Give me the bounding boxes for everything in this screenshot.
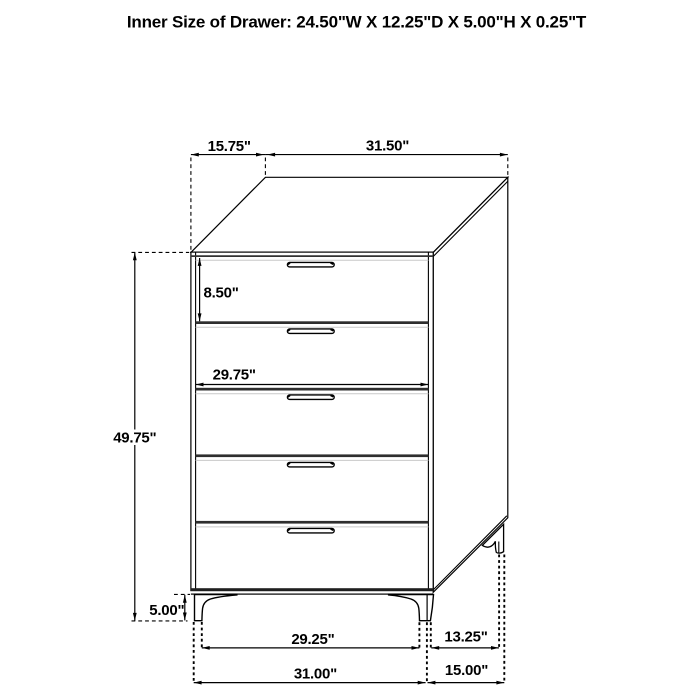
svg-text:Inner Size of Drawer: 24.50"W: Inner Size of Drawer: 24.50"W X 12.25"D … (127, 13, 587, 32)
svg-text:15.00": 15.00" (445, 662, 488, 679)
svg-text:5.00": 5.00" (149, 602, 184, 619)
svg-text:13.25": 13.25" (444, 629, 487, 646)
svg-text:8.50": 8.50" (204, 284, 239, 301)
svg-text:15.75": 15.75" (208, 138, 251, 155)
svg-text:31.50": 31.50" (366, 138, 409, 155)
svg-text:29.75": 29.75" (213, 367, 256, 384)
svg-text:31.00": 31.00" (294, 666, 337, 683)
svg-text:49.75": 49.75" (113, 430, 156, 447)
svg-text:29.25": 29.25" (291, 631, 334, 648)
